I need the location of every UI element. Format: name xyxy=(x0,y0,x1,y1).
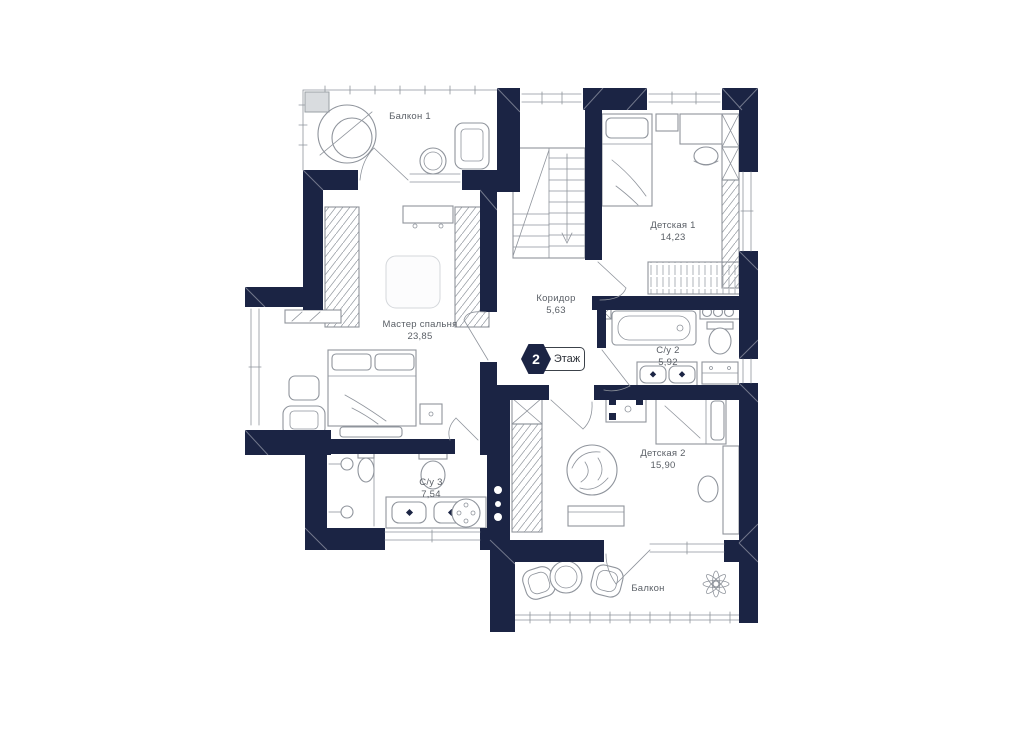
balcony1-corner-post xyxy=(305,92,329,112)
floor-badge: Этаж 2 xyxy=(521,345,585,373)
balcony2-railing xyxy=(515,612,739,623)
laundry-stool xyxy=(452,499,480,527)
window-kids1-right xyxy=(741,172,753,251)
door-balcony1 xyxy=(360,148,408,180)
master-bed xyxy=(328,350,416,437)
wardrobe-left xyxy=(325,207,359,327)
room-name: Балкон xyxy=(631,583,664,595)
kids2-desk xyxy=(698,446,739,534)
room-area: 5,92 xyxy=(656,357,679,369)
window-stairs xyxy=(522,92,581,104)
lounge-chair xyxy=(283,376,325,436)
balcony-chair-2 xyxy=(589,563,625,599)
desk-chair-2 xyxy=(698,476,718,502)
stair-direction-arrow xyxy=(562,154,572,243)
bidet xyxy=(358,452,374,482)
staircase xyxy=(513,148,585,258)
kids-room1-furniture xyxy=(602,114,750,294)
window-master-left xyxy=(249,309,261,425)
bath2-cabinet xyxy=(702,362,738,384)
window-kids1-top xyxy=(649,92,720,104)
room-name: Детская 1 xyxy=(650,220,695,232)
desk-chair xyxy=(694,147,718,165)
bath3-fixtures xyxy=(329,452,486,528)
room-label-kids1: Детская 1 14,23 xyxy=(650,220,695,244)
room-label-bath3: С/у 3 7,54 xyxy=(419,477,442,501)
toilet-2 xyxy=(707,322,733,354)
room-name: Мастер спальня xyxy=(382,319,457,331)
kids2-bed xyxy=(656,397,726,444)
kids1-bed xyxy=(602,114,652,206)
balcony-table xyxy=(550,561,582,593)
armchair xyxy=(455,123,489,169)
door-bath3 xyxy=(449,418,478,440)
bed-bench xyxy=(340,427,402,437)
room-label-balcony1: Балкон 1 xyxy=(389,111,431,123)
room-label-balcony2: Балкон xyxy=(631,583,664,595)
ottoman xyxy=(289,376,319,400)
door-kids1 xyxy=(598,262,626,300)
dresser xyxy=(403,206,453,228)
kids1-shelf xyxy=(648,262,750,294)
plant xyxy=(703,571,729,597)
shower-head-2 xyxy=(329,506,353,518)
room-area: 23,85 xyxy=(382,331,457,343)
room-name: С/у 2 xyxy=(656,345,679,357)
hanging-chair xyxy=(318,105,376,163)
room-label-kids2: Детская 2 15,90 xyxy=(640,448,685,472)
floor-badge-text: Этаж xyxy=(554,353,580,365)
tv-console xyxy=(285,310,341,323)
side-table xyxy=(420,148,446,174)
room-area: 14,23 xyxy=(650,232,695,244)
kids2-wardrobe xyxy=(512,398,542,532)
kids-room2-furniture xyxy=(512,395,739,534)
window-master-balcony xyxy=(410,174,460,182)
door-kids2 xyxy=(551,400,592,429)
rug xyxy=(386,256,440,308)
floor-plan-drawing xyxy=(0,0,1024,747)
room-area: 7,54 xyxy=(419,489,442,501)
room-name: Детская 2 xyxy=(640,448,685,460)
floor-plan-page: Балкон 1 Мастер спальня 23,85 Коридор 5,… xyxy=(0,0,1024,747)
room-label-corridor: Коридор 5,63 xyxy=(536,293,575,317)
door-bath2 xyxy=(602,350,630,391)
nightstand xyxy=(420,404,442,424)
kids1-nightstand xyxy=(656,114,678,131)
window-bath3 xyxy=(385,530,480,542)
window-kids2-bottom xyxy=(650,542,724,554)
room-name: Коридор xyxy=(536,293,575,305)
bathtub xyxy=(612,311,696,345)
beanbag xyxy=(567,445,617,495)
shower-head xyxy=(329,458,353,470)
floor-number: 2 xyxy=(532,351,540,367)
room-area: 5,63 xyxy=(536,305,575,317)
room-label-bath2: С/у 2 5,92 xyxy=(656,345,679,369)
room-name: С/у 3 xyxy=(419,477,442,489)
kids2-bench xyxy=(568,506,624,526)
balcony2-furniture xyxy=(520,561,729,602)
window-bath2 xyxy=(743,359,751,383)
room-area: 15,90 xyxy=(640,460,685,472)
room-name: Балкон 1 xyxy=(389,111,431,123)
room-label-master: Мастер спальня 23,85 xyxy=(382,319,457,343)
